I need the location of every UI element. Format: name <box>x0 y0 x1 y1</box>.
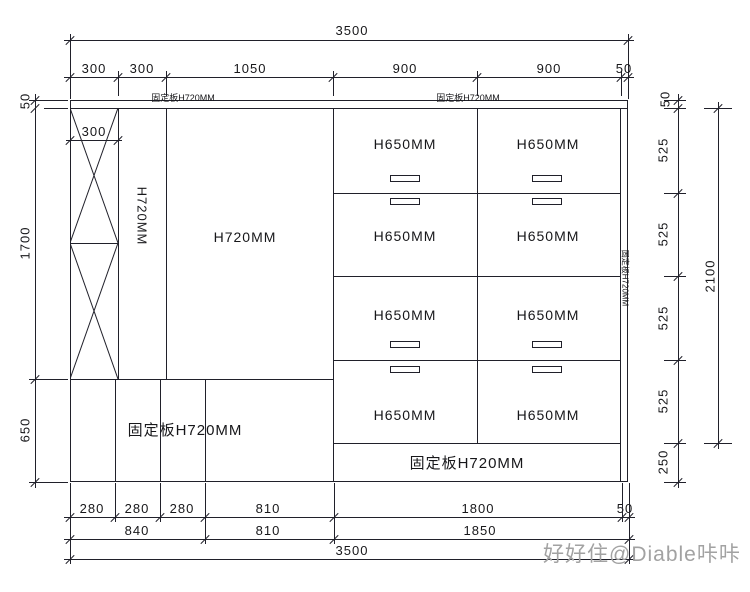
dim-right-segment: 50 <box>658 91 673 107</box>
dim-bottom-row2: 1850 <box>464 523 497 538</box>
extension-line <box>664 482 686 483</box>
extension-line <box>205 483 206 544</box>
dim-right-segment: 525 <box>656 389 671 414</box>
bottom-left-panel-label: 固定板H720MM <box>128 419 243 440</box>
extension-line <box>664 276 686 277</box>
extension-line <box>70 34 71 99</box>
center-divider-line <box>333 108 334 482</box>
extension-line <box>44 108 68 109</box>
dim-top-segment: 900 <box>393 61 418 76</box>
dim-top-total: 3500 <box>336 23 369 38</box>
extension-line <box>664 108 686 109</box>
dim-line-left <box>35 94 36 488</box>
dim-right-total: 2100 <box>703 260 718 293</box>
drawer-label: H650MM <box>374 228 437 244</box>
dim-right-segment: 525 <box>656 306 671 331</box>
open-area-label: H720MM <box>214 229 277 245</box>
drawer-label: H650MM <box>517 407 580 423</box>
top-panel-right-label: 固定板H720MM <box>436 91 500 104</box>
drawer-handle <box>390 198 420 205</box>
dim-bottom-row2: 840 <box>125 523 150 538</box>
extension-line <box>664 360 686 361</box>
dim-inner-width: 300 <box>82 124 107 139</box>
dim-top-segment: 300 <box>82 61 107 76</box>
drawer-label: H650MM <box>374 407 437 423</box>
dim-bottom-row1: 280 <box>125 501 150 516</box>
dim-bottom-total: 3500 <box>336 543 369 558</box>
dim-bottom-row2: 810 <box>256 523 281 538</box>
dim-right-segment: 525 <box>656 138 671 163</box>
drawer-bottom-line <box>333 443 620 444</box>
dim-line-top-total <box>64 40 634 41</box>
extension-line <box>704 443 732 444</box>
drawer-handle <box>390 366 420 373</box>
drawer-label: H650MM <box>374 307 437 323</box>
divider-panel-line <box>166 108 167 379</box>
extension-line <box>664 443 686 444</box>
dim-left: 1700 <box>18 227 33 260</box>
extension-line <box>166 71 167 96</box>
extension-line <box>704 108 732 109</box>
extension-line <box>29 379 68 380</box>
drawer-row-line <box>333 193 620 194</box>
drawer-label: H650MM <box>517 307 580 323</box>
dim-left: 650 <box>18 418 33 443</box>
extension-line <box>29 100 68 101</box>
dim-top-segment: 50 <box>616 61 632 76</box>
extension-line <box>115 483 116 522</box>
dim-right-segment: 525 <box>656 222 671 247</box>
drawer-handle <box>532 341 562 348</box>
left-section-bottom-line <box>70 379 333 380</box>
dim-bottom-row1: 50 <box>617 501 633 516</box>
drawer-handle <box>390 175 420 182</box>
dim-right-segment: 250 <box>656 450 671 475</box>
drawing-canvas: H650MM H650MM H650MM H650MM H650MM H650M… <box>0 0 750 592</box>
dim-bottom-row1: 280 <box>170 501 195 516</box>
drawer-row-line <box>333 360 620 361</box>
extension-line <box>70 483 71 564</box>
drawer-label: H650MM <box>517 136 580 152</box>
dim-line-inner <box>66 140 122 141</box>
extension-line <box>333 71 334 96</box>
dim-line-bottom-row1 <box>64 517 635 518</box>
right-side-panel-label: 固定板H720MM <box>620 250 631 306</box>
drawer-row-line <box>333 276 620 277</box>
extension-line <box>664 193 686 194</box>
dim-bottom-row1: 810 <box>256 501 281 516</box>
drawer-label: H650MM <box>517 228 580 244</box>
dim-top-segment: 900 <box>537 61 562 76</box>
drawer-handle <box>390 341 420 348</box>
drawer-handle <box>532 175 562 182</box>
extension-line <box>118 71 119 96</box>
tall-column-label: H720MM <box>135 187 150 246</box>
watermark: 好好住@Diable咔咔 <box>543 538 741 568</box>
extension-line <box>622 483 623 522</box>
bottom-right-panel-label: 固定板H720MM <box>410 452 525 473</box>
drawer-label: H650MM <box>374 136 437 152</box>
dim-bottom-row1: 1800 <box>462 501 495 516</box>
dim-left: 50 <box>18 93 33 109</box>
x-brace-panel <box>70 108 118 379</box>
extension-line <box>160 483 161 522</box>
dim-line-right-segments <box>678 94 679 488</box>
dim-bottom-row1: 280 <box>80 501 105 516</box>
drawer-handle <box>532 198 562 205</box>
tall-column-right-line <box>118 108 119 379</box>
dim-line-top-segments <box>64 77 634 78</box>
dim-top-segment: 300 <box>130 61 155 76</box>
drawer-handle <box>532 366 562 373</box>
extension-line <box>29 482 68 483</box>
dim-line-right-total <box>718 102 719 449</box>
dim-top-segment: 1050 <box>234 61 267 76</box>
extension-line <box>477 71 478 96</box>
top-panel-left-label: 固定板H720MM <box>151 91 215 104</box>
extension-line <box>334 483 335 544</box>
base-divider-line <box>115 379 116 482</box>
top-fixed-panel-line <box>70 108 628 109</box>
